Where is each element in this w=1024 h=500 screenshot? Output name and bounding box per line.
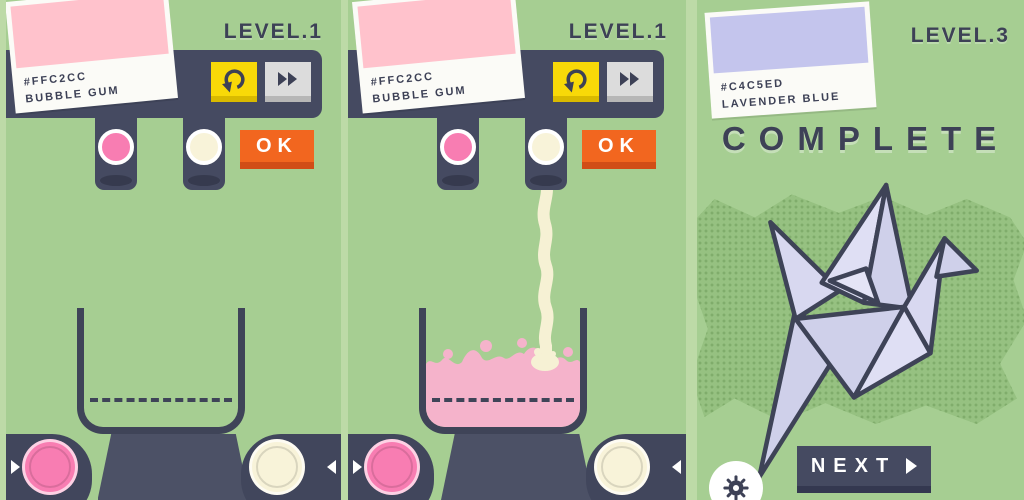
beaker bbox=[419, 308, 587, 434]
next-label: NEXT bbox=[811, 455, 896, 478]
dispenser-dot-cream bbox=[186, 129, 222, 165]
dispenser-pink[interactable] bbox=[95, 116, 137, 190]
complete-status-label: COMPLETE bbox=[697, 120, 1024, 158]
level-label: LEVEL.1 bbox=[224, 20, 323, 44]
dispenser-dot-pink bbox=[98, 129, 134, 165]
ingredient-knob-cream[interactable] bbox=[594, 439, 650, 495]
ok-button[interactable]: OK bbox=[582, 130, 656, 169]
target-color-card: #FFC2CC BUBBLE GUM bbox=[352, 0, 525, 114]
color-hex-label: #FFC2CC bbox=[23, 71, 87, 89]
dispenser-cream[interactable] bbox=[183, 116, 225, 190]
color-name-label: BUBBLE GUM bbox=[25, 85, 120, 106]
target-color-card: #C4C5ED LAVENDER BLUE bbox=[705, 1, 877, 118]
knob-ring bbox=[256, 446, 298, 488]
fill-target-dashed-line bbox=[432, 398, 574, 402]
origami-crane-illustration bbox=[737, 182, 989, 484]
beaker-stand bbox=[441, 434, 593, 500]
undo-button[interactable] bbox=[553, 62, 599, 102]
selector-right-triangle-icon bbox=[353, 460, 362, 474]
target-color-card: #FFC2CC BUBBLE GUM bbox=[6, 0, 178, 114]
fast-forward-icon bbox=[275, 70, 301, 88]
color-hex-label: #FFC2CC bbox=[370, 71, 434, 89]
panel-divider bbox=[341, 0, 348, 500]
undo-icon bbox=[221, 66, 248, 93]
next-arrow-icon bbox=[906, 458, 917, 474]
gear-icon bbox=[722, 474, 750, 500]
beaker-liquid bbox=[426, 308, 580, 427]
beaker bbox=[77, 308, 245, 434]
panel-level1-pouring: LEVEL.1 #FFC2CC BUBBLE GUM bbox=[348, 0, 686, 500]
ingredient-button-cream[interactable] bbox=[241, 434, 341, 500]
dispenser-cream[interactable] bbox=[525, 116, 567, 190]
knob-ring bbox=[601, 446, 643, 488]
color-name-label: BUBBLE GUM bbox=[372, 85, 467, 106]
dispenser-dot-cream bbox=[528, 129, 564, 165]
game-screens-strip: LEVEL.1 #FFC2CC BUBBLE GUM bbox=[0, 0, 1024, 500]
selector-left-triangle-icon bbox=[672, 460, 681, 474]
dispenser-mouth bbox=[100, 175, 132, 186]
target-color-swatch bbox=[10, 0, 168, 68]
panel-level1: LEVEL.1 #FFC2CC BUBBLE GUM bbox=[6, 0, 341, 500]
fast-forward-icon bbox=[617, 70, 643, 88]
panel-level3-complete: LEVEL.3 #C4C5ED LAVENDER BLUE COMPLETE bbox=[697, 0, 1024, 500]
target-color-swatch bbox=[710, 7, 869, 74]
dispenser-mouth bbox=[530, 175, 562, 186]
knob-ring bbox=[371, 446, 413, 488]
undo-icon bbox=[563, 66, 590, 93]
level-label: LEVEL.3 bbox=[911, 24, 1010, 48]
selector-right-triangle-icon bbox=[11, 460, 20, 474]
color-name-label: LAVENDER BLUE bbox=[722, 91, 841, 111]
target-color-swatch bbox=[357, 0, 515, 68]
undo-button[interactable] bbox=[211, 62, 257, 102]
ingredient-button-pink[interactable] bbox=[6, 434, 92, 500]
beaker-stand bbox=[98, 434, 250, 500]
dispenser-mouth bbox=[442, 175, 474, 186]
panel-divider bbox=[686, 0, 697, 500]
dispenser-dot-pink bbox=[440, 129, 476, 165]
ingredient-button-cream[interactable] bbox=[586, 434, 686, 500]
ingredient-knob-pink[interactable] bbox=[22, 439, 78, 495]
fast-forward-button[interactable] bbox=[265, 62, 311, 102]
ingredient-button-pink[interactable] bbox=[348, 434, 434, 500]
fill-target-dashed-line bbox=[90, 398, 232, 402]
color-hex-label: #C4C5ED bbox=[720, 78, 784, 94]
knob-ring bbox=[29, 446, 71, 488]
fast-forward-button[interactable] bbox=[607, 62, 653, 102]
dispenser-pink[interactable] bbox=[437, 116, 479, 190]
dispenser-mouth bbox=[188, 175, 220, 186]
level-label: LEVEL.1 bbox=[569, 20, 668, 44]
next-level-button[interactable]: NEXT bbox=[797, 446, 931, 493]
selector-left-triangle-icon bbox=[327, 460, 336, 474]
ingredient-knob-cream[interactable] bbox=[249, 439, 305, 495]
ok-button[interactable]: OK bbox=[240, 130, 314, 169]
ingredient-knob-pink[interactable] bbox=[364, 439, 420, 495]
